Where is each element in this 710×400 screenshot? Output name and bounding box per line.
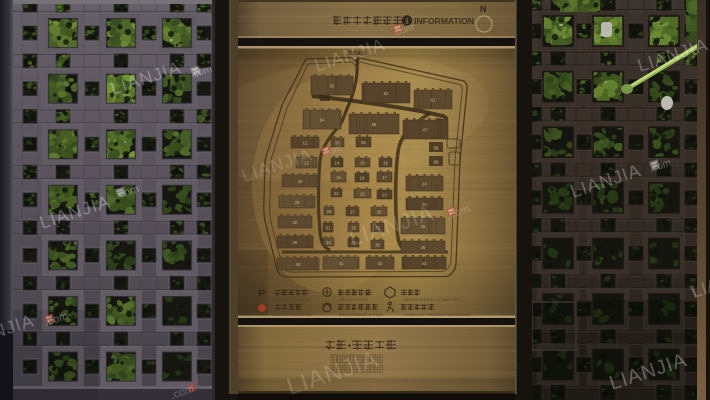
svg-text:NEIGHBORHOOD COMMITTEE: NEIGHBORHOOD COMMITTEE: [403, 298, 460, 302]
svg-text:64: 64: [320, 118, 325, 123]
svg-text:23: 23: [382, 193, 387, 198]
svg-text:20: 20: [298, 179, 303, 184]
svg-text:17: 17: [382, 175, 387, 180]
svg-text:31: 31: [326, 226, 331, 231]
svg-text:62: 62: [384, 91, 389, 96]
svg-text:26: 26: [377, 210, 382, 215]
svg-text:43: 43: [422, 261, 427, 266]
svg-text:27: 27: [350, 210, 355, 215]
svg-text:60: 60: [434, 160, 439, 165]
svg-text:67: 67: [423, 128, 428, 133]
svg-text:22: 22: [360, 192, 365, 197]
svg-text:14: 14: [335, 161, 340, 166]
svg-text:40: 40: [296, 262, 301, 267]
svg-text:34: 34: [326, 240, 331, 245]
svg-text:HEALTH CLINIC: HEALTH CLINIC: [339, 298, 368, 302]
svg-text:COMMUNITY RECREATION CENTER: COMMUNITY RECREATION CENTER: [403, 313, 471, 317]
svg-text:P: P: [258, 288, 265, 300]
svg-text:39: 39: [293, 240, 298, 245]
svg-text:GARAGE ENTRANCE: GARAGE ENTRANCE: [272, 298, 312, 302]
svg-text:21: 21: [334, 191, 339, 196]
svg-text:MAINTENANCE OFFICE: MAINTENANCE OFFICE: [339, 313, 383, 317]
svg-text:28: 28: [327, 209, 332, 214]
svg-text:24: 24: [422, 182, 427, 187]
svg-text:16: 16: [383, 161, 388, 166]
svg-text:42: 42: [378, 261, 383, 266]
svg-text:41: 41: [339, 261, 344, 266]
svg-text:19: 19: [336, 175, 341, 180]
svg-text:INFORMATION: INFORMATION: [414, 16, 474, 26]
svg-text:18: 18: [360, 176, 365, 181]
svg-text:58: 58: [434, 146, 439, 151]
svg-text:N: N: [480, 4, 487, 14]
svg-text:56: 56: [361, 140, 366, 145]
svg-text:30: 30: [293, 220, 298, 225]
svg-text:15: 15: [360, 161, 365, 166]
svg-text:36: 36: [421, 245, 426, 250]
svg-text:63: 63: [330, 84, 335, 89]
svg-text:CURRENT LOCATION: CURRENT LOCATION: [272, 313, 312, 317]
svg-text:29: 29: [295, 200, 300, 205]
svg-text:66: 66: [372, 122, 377, 127]
svg-text:61: 61: [431, 98, 436, 103]
